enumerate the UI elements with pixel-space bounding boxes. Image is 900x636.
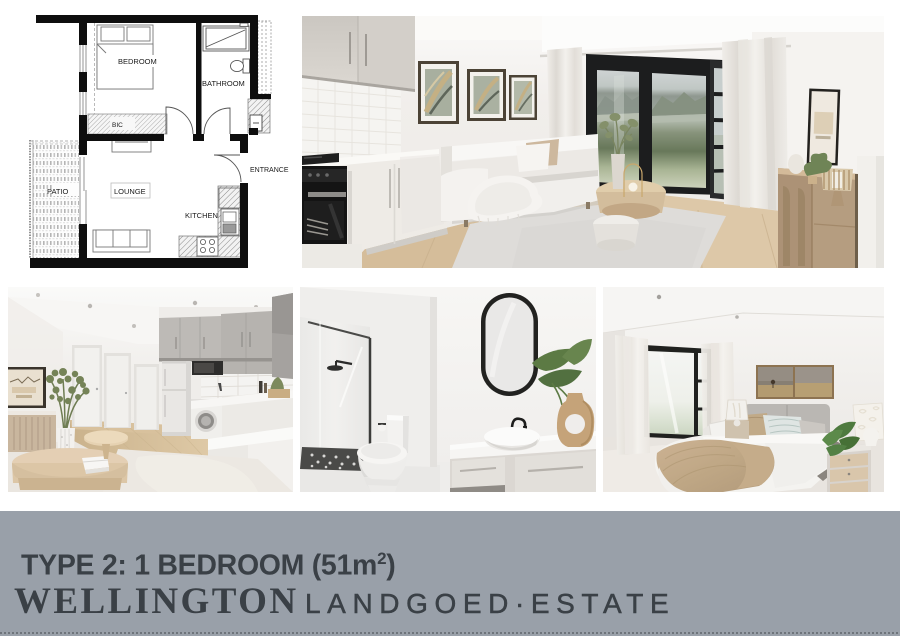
svg-text:KITCHEN: KITCHEN <box>185 211 218 220</box>
svg-text:BEDROOM: BEDROOM <box>118 57 157 66</box>
svg-text:LOUNGE: LOUNGE <box>114 187 146 196</box>
svg-text:ENTRANCE: ENTRANCE <box>250 167 289 174</box>
svg-text:PATIO: PATIO <box>47 187 69 196</box>
svg-text:BATHROOM: BATHROOM <box>202 79 245 88</box>
svg-text:BIC: BIC <box>112 122 123 129</box>
